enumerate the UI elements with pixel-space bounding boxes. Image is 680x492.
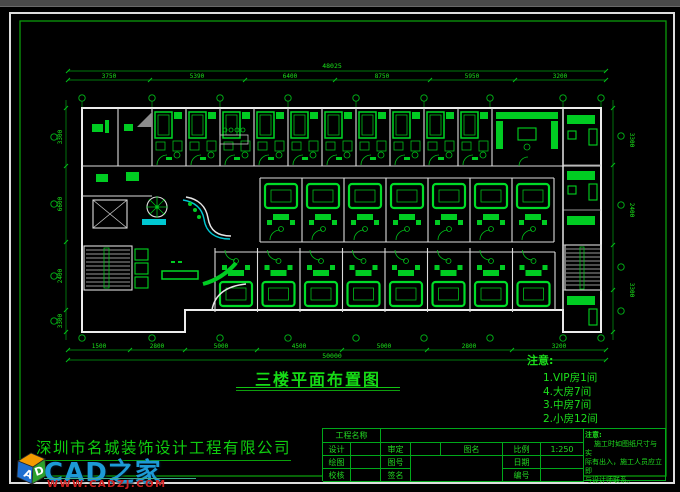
grid-bubbles-bottom bbox=[79, 335, 604, 341]
sign-label: 签名 bbox=[381, 469, 411, 482]
title-underline-2 bbox=[236, 390, 400, 391]
note-heading: 注意: bbox=[585, 431, 602, 439]
svg-text:3750: 3750 bbox=[102, 73, 117, 80]
svg-text:2400: 2400 bbox=[628, 203, 635, 218]
right-wing-rooms bbox=[567, 115, 597, 325]
serial-value bbox=[541, 469, 584, 482]
design-label: 设计 bbox=[323, 443, 351, 456]
svg-text:6400: 6400 bbox=[283, 73, 298, 80]
title-underline bbox=[236, 387, 400, 388]
cadzj-site-url: WWW.CADZJ.COM bbox=[47, 479, 167, 490]
svg-text:3300: 3300 bbox=[57, 313, 64, 328]
design-value bbox=[351, 443, 381, 456]
middle-room-row bbox=[260, 178, 549, 242]
svg-text:1500: 1500 bbox=[92, 343, 107, 350]
draft-label: 绘图 bbox=[323, 456, 351, 469]
dimensions-top: 48025 3750 5390 6400 8750 5950 3200 bbox=[66, 62, 608, 107]
title-block-table: 工程名称 设计 审定 图名 比例 1:250 绘图 图号 日期 校核 签名 编号 bbox=[322, 428, 583, 481]
date-label: 日期 bbox=[503, 456, 541, 469]
stairs-right bbox=[565, 245, 601, 290]
drawname-value bbox=[411, 456, 503, 482]
legend-heading: 注意: bbox=[527, 352, 598, 368]
legend-item: 3.中房7间 bbox=[543, 399, 598, 413]
svg-text:5390: 5390 bbox=[190, 73, 205, 80]
top-room-row bbox=[152, 108, 488, 166]
stairs-left bbox=[84, 246, 132, 290]
dimensions-right: 3300 2400 3300 bbox=[611, 100, 635, 340]
svg-text:3200: 3200 bbox=[552, 343, 567, 350]
serial-label: 编号 bbox=[503, 469, 541, 482]
date-value bbox=[541, 456, 584, 469]
svg-text:5950: 5950 bbox=[465, 73, 480, 80]
check-value bbox=[351, 469, 381, 482]
legend-item: 2.小房12间 bbox=[543, 413, 598, 427]
svg-text:50000: 50000 bbox=[322, 352, 342, 360]
scale-label: 比例 bbox=[503, 443, 541, 456]
svg-text:2800: 2800 bbox=[462, 343, 477, 350]
svg-text:3300: 3300 bbox=[628, 283, 635, 298]
review-label: 审定 bbox=[381, 443, 411, 456]
cad-drawing-stage: 48025 3750 5390 6400 8750 5950 3200 bbox=[0, 0, 680, 492]
svg-text:8750: 8750 bbox=[375, 73, 390, 80]
note-line: 际有出入，施工人员应立即 bbox=[585, 458, 663, 476]
legend-item: 1.VIP房1间 bbox=[543, 372, 598, 386]
vip-room bbox=[496, 112, 558, 166]
project-name-value bbox=[381, 429, 584, 443]
svg-text:5000: 5000 bbox=[377, 343, 392, 350]
svg-text:3300: 3300 bbox=[57, 129, 64, 144]
left-core bbox=[84, 120, 148, 290]
bottom-room-row bbox=[215, 248, 550, 312]
svg-text:3200: 3200 bbox=[553, 73, 568, 80]
dimensions-left: 3300 6600 2400 3300 bbox=[51, 100, 68, 340]
check-label: 校核 bbox=[323, 469, 351, 482]
sheetno-label: 图号 bbox=[381, 456, 411, 469]
project-name-label: 工程名称 bbox=[323, 429, 381, 443]
svg-text:5000: 5000 bbox=[214, 343, 229, 350]
scale-value: 1:250 bbox=[541, 443, 584, 456]
svg-text:2400: 2400 bbox=[57, 268, 64, 283]
svg-text:2800: 2800 bbox=[150, 343, 165, 350]
draft-value bbox=[351, 456, 381, 469]
svg-text:3300: 3300 bbox=[628, 133, 635, 148]
drawname-label: 图名 bbox=[441, 443, 503, 456]
grid-bubbles-top bbox=[79, 95, 604, 107]
note-line: 与设计师联系。 bbox=[585, 476, 663, 485]
legend-item: 4.大房7间 bbox=[543, 386, 598, 400]
note-line: 施工时如图纸尺寸与实 bbox=[585, 440, 663, 458]
construction-note: 注意: 施工时如图纸尺寸与实 际有出入，施工人员应立即 与设计师联系。 bbox=[583, 428, 666, 481]
svg-text:4500: 4500 bbox=[292, 343, 307, 350]
svg-text:48025: 48025 bbox=[322, 62, 342, 70]
svg-text:6600: 6600 bbox=[57, 196, 64, 211]
review-value bbox=[411, 443, 441, 456]
room-legend: 注意: 1.VIP房1间 4.大房7间 3.中房7间 2.小房12间 bbox=[527, 352, 598, 426]
